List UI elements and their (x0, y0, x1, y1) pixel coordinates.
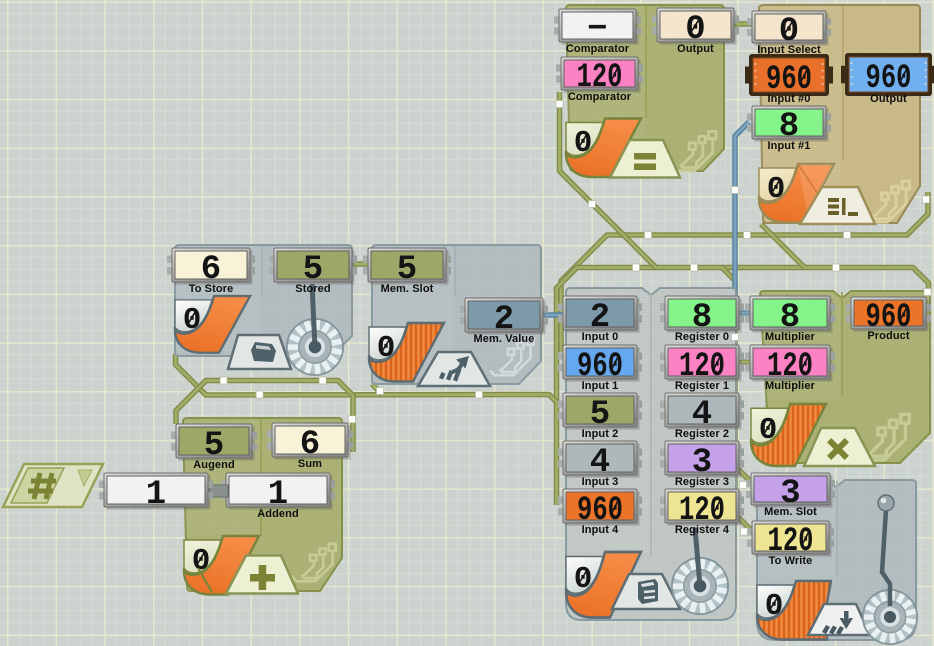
svg-text:Mem. Slot: Mem. Slot (381, 283, 434, 295)
svg-text:To Write: To Write (769, 555, 813, 567)
svg-text:Register 3: Register 3 (675, 476, 729, 488)
svg-text:Input #1: Input #1 (768, 140, 811, 152)
svg-text:Augend: Augend (193, 459, 235, 471)
svg-text:Input 2: Input 2 (582, 428, 619, 440)
svg-text:0: 0 (767, 172, 786, 207)
svg-text:Multiplier: Multiplier (765, 331, 816, 343)
svg-text:0: 0 (183, 303, 202, 338)
svg-text:Multiplier: Multiplier (765, 380, 816, 392)
svg-text:Input 0: Input 0 (582, 331, 619, 343)
svg-text:Input #0: Input #0 (768, 93, 811, 105)
svg-text:Register 2: Register 2 (675, 428, 729, 440)
svg-text:Stored: Stored (295, 283, 330, 295)
svg-text:Addend: Addend (257, 508, 299, 520)
svg-text:Register 4: Register 4 (675, 524, 730, 536)
svg-text:Register 1: Register 1 (675, 380, 729, 392)
svg-text:Input 4: Input 4 (582, 524, 620, 536)
svg-text:0: 0 (377, 331, 396, 366)
svg-text:Input 1: Input 1 (582, 380, 619, 392)
svg-text:Register 0: Register 0 (675, 331, 729, 343)
svg-text:0: 0 (574, 562, 593, 597)
svg-text:Input 3: Input 3 (582, 476, 619, 488)
svg-text:0: 0 (759, 413, 778, 448)
svg-text:Comparator: Comparator (566, 43, 630, 55)
svg-text:To Store: To Store (189, 283, 234, 295)
svg-text:Product: Product (867, 330, 909, 342)
svg-text:0: 0 (574, 126, 593, 161)
svg-text:0: 0 (765, 589, 784, 624)
svg-text:Mem. Slot: Mem. Slot (764, 506, 817, 518)
svg-text:Comparator: Comparator (568, 91, 632, 103)
svg-text:1: 1 (146, 476, 166, 514)
svg-text:Output: Output (870, 93, 907, 105)
svg-text:Mem. Value: Mem. Value (474, 333, 535, 345)
svg-text:Output: Output (677, 43, 714, 55)
svg-text:Sum: Sum (298, 458, 322, 470)
